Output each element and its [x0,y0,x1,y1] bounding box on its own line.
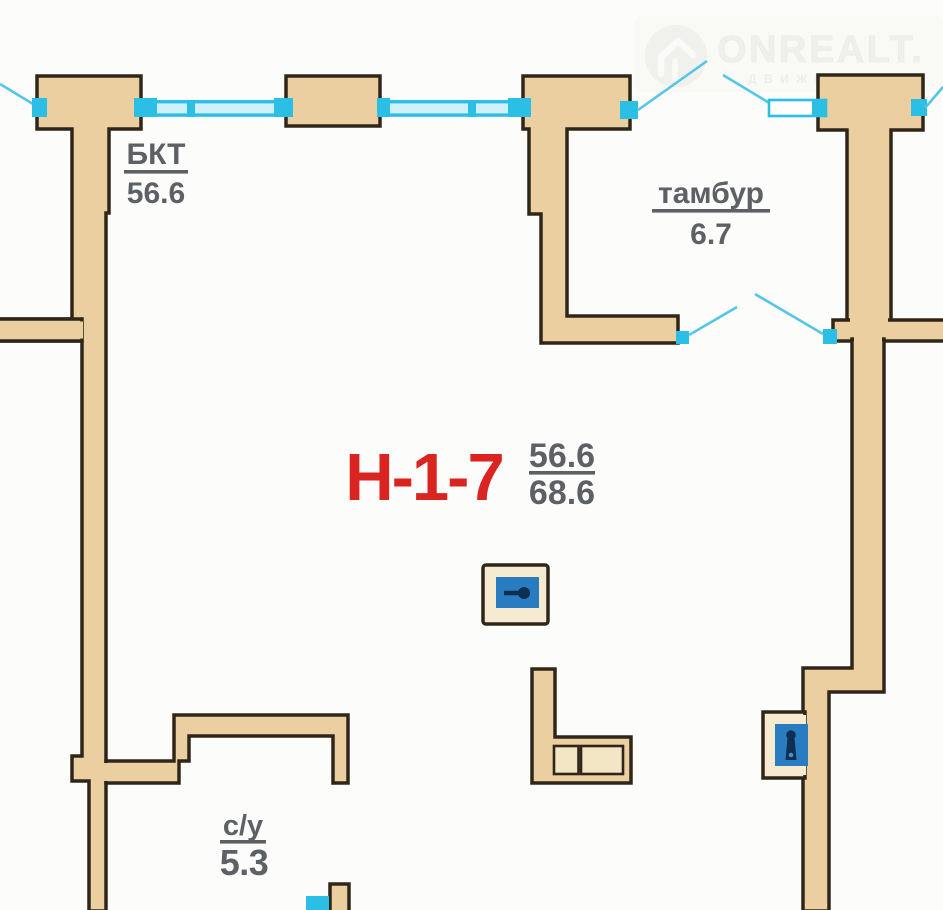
svg-text:БКТ: БКТ [127,138,186,171]
svg-text:ONREALT.: ONREALT. [717,29,924,71]
svg-text:56.6: 56.6 [529,437,595,475]
svg-text:56.6: 56.6 [127,177,185,210]
svg-text:6.7: 6.7 [690,218,732,251]
svg-text:68.6: 68.6 [529,474,595,512]
svg-text:Н-1-7: Н-1-7 [345,440,503,515]
svg-text:тамбур: тамбур [658,177,764,210]
svg-text:5.3: 5.3 [220,842,269,883]
svg-text:с/у: с/у [223,810,263,842]
